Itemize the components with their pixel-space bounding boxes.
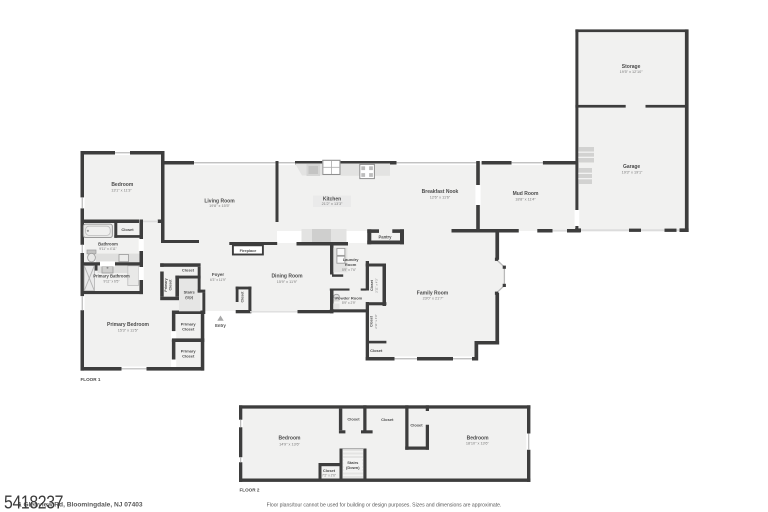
svg-text:Entry: Entry	[215, 323, 226, 328]
svg-text:14'9" x 13'6": 14'9" x 13'6"	[279, 442, 300, 446]
svg-text:Primary: Primary	[181, 348, 197, 353]
svg-text:Primary Bathroom: Primary Bathroom	[93, 273, 130, 278]
svg-text:Mud Room: Mud Room	[513, 191, 539, 197]
svg-text:19'8" x 15'5": 19'8" x 15'5"	[209, 204, 230, 208]
svg-text:(Up): (Up)	[185, 295, 194, 300]
svg-text:5'9" x 2'9": 5'9" x 2'9"	[342, 301, 356, 305]
svg-text:Bedroom: Bedroom	[279, 436, 302, 442]
svg-text:Closet: Closet	[381, 417, 394, 422]
svg-text:9'11" x 4'11": 9'11" x 4'11"	[99, 247, 117, 251]
svg-text:12'6" x 11'6": 12'6" x 11'6"	[430, 196, 451, 200]
svg-text:Closet: Closet	[241, 291, 245, 303]
svg-text:Pantry: Pantry	[378, 234, 392, 239]
svg-text:FLOOR 1: FLOOR 1	[81, 377, 101, 382]
svg-text:Breakfast Nook: Breakfast Nook	[422, 189, 459, 195]
svg-text:Powder Room: Powder Room	[335, 295, 362, 300]
svg-text:7'2" x 2'6": 7'2" x 2'6"	[322, 474, 336, 478]
svg-text:18'8" x 11'4": 18'8" x 11'4"	[515, 198, 536, 202]
svg-text:9'11" x 6'5": 9'11" x 6'5"	[103, 279, 120, 283]
svg-text:Fireplace: Fireplace	[240, 249, 257, 253]
svg-text:(Down): (Down)	[346, 465, 360, 470]
svg-text:5418237: 5418237	[4, 491, 63, 512]
svg-text:Closet: Closet	[410, 422, 423, 427]
svg-text:6'3" x 11'9": 6'3" x 11'9"	[210, 278, 227, 282]
svg-text:2'11" x 4'9": 2'11" x 4'9"	[374, 314, 378, 329]
svg-text:Closet: Closet	[182, 354, 195, 359]
svg-text:Closet: Closet	[121, 227, 134, 232]
svg-text:Stairs: Stairs	[184, 289, 196, 294]
svg-text:Primary: Primary	[181, 321, 197, 326]
svg-text:Closet: Closet	[323, 468, 336, 473]
svg-text:15'9" x 11'9": 15'9" x 11'9"	[277, 280, 298, 284]
svg-text:Room: Room	[345, 262, 357, 267]
svg-text:19'3" x 19'1": 19'3" x 19'1"	[622, 170, 643, 174]
svg-text:18'10" x 13'6": 18'10" x 13'6"	[466, 442, 490, 446]
svg-text:Stairs: Stairs	[347, 460, 359, 465]
svg-text:FLOOR 2: FLOOR 2	[240, 488, 260, 493]
svg-text:23'0" x 21'7": 23'0" x 21'7"	[423, 296, 444, 300]
svg-text:Closet: Closet	[370, 348, 383, 353]
svg-text:Garage: Garage	[623, 164, 640, 170]
svg-text:Bedroom: Bedroom	[467, 435, 490, 441]
svg-text:Bedroom: Bedroom	[111, 182, 134, 188]
svg-text:Storage: Storage	[622, 64, 641, 70]
svg-text:Primary: Primary	[164, 278, 168, 291]
svg-text:Dining Room: Dining Room	[271, 274, 303, 280]
svg-text:Closet: Closet	[169, 279, 173, 291]
svg-text:Bathroom: Bathroom	[98, 241, 118, 246]
svg-text:21'2" x 13'3": 21'2" x 13'3"	[322, 202, 343, 206]
svg-text:2'11" x 4'3": 2'11" x 4'3"	[374, 278, 378, 293]
svg-text:15'3" x 11'5": 15'3" x 11'5"	[118, 329, 139, 333]
svg-text:Closet: Closet	[347, 416, 360, 421]
svg-text:Closet: Closet	[182, 268, 195, 273]
svg-text:5'9" x 7'6": 5'9" x 7'6"	[342, 268, 356, 272]
svg-text:Foyer: Foyer	[212, 272, 225, 277]
svg-text:Primary Bedroom: Primary Bedroom	[107, 322, 150, 328]
svg-text:13'1" x 11'3": 13'1" x 11'3"	[111, 189, 132, 193]
svg-text:Closet: Closet	[182, 327, 195, 332]
svg-text:19'5" x 12'10": 19'5" x 12'10"	[620, 70, 644, 74]
svg-text:Floor plans/tour cannot be use: Floor plans/tour cannot be used for buil…	[267, 502, 502, 508]
